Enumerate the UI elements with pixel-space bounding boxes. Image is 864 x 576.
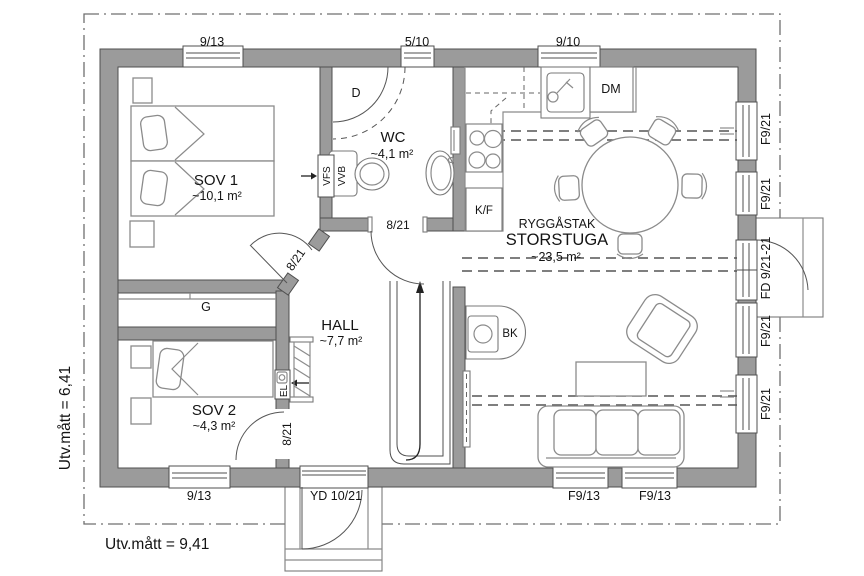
arrow-right-icon <box>311 173 317 180</box>
room-label-storstuga: STORSTUGA <box>506 231 608 249</box>
ceiling-note: RYGGÅSTAK <box>519 216 596 231</box>
window-label-bottom-3: F9/13 <box>639 489 671 503</box>
floorplan-canvas: SOV 1 ~10,1 m² SOV 2 ~4,3 m² WC ~4,1 m² … <box>0 0 864 576</box>
nightstand <box>133 78 152 103</box>
dining-table <box>582 137 678 233</box>
window-label-bottom-2: F9/13 <box>568 489 600 503</box>
entry-door-label: YD 10/21 <box>310 489 362 503</box>
window-label-right-2: F9/21 <box>759 178 773 210</box>
armchair <box>622 290 702 368</box>
nightstand <box>131 346 151 368</box>
room-area-wc: ~4,1 m² <box>371 147 414 161</box>
window-label-top-2: 5/10 <box>405 35 429 49</box>
sov2-door-label: 8/21 <box>280 422 294 446</box>
room-label-hall: HALL <box>321 317 359 334</box>
nightstand <box>130 221 154 247</box>
stairs <box>390 281 450 464</box>
electrical-panel-label: EL <box>279 384 290 397</box>
room-area-hall: ~7,7 m² <box>320 334 363 348</box>
water-heater-label: VVB <box>337 166 348 186</box>
room-label-wc: WC <box>381 129 406 146</box>
sov1-door-swing <box>250 233 312 250</box>
pillow <box>140 169 168 206</box>
window-label-top-3: 9/10 <box>556 35 580 49</box>
room-area-sov1: ~10,1 m² <box>192 189 242 203</box>
coffee-table <box>576 362 646 396</box>
sov1-furniture <box>130 78 274 247</box>
sov1-door-label: 8/21 <box>283 246 308 273</box>
fridge-freezer-label: K/F <box>475 205 493 217</box>
closet <box>118 293 276 299</box>
outer-width-dimension: Utv.mått = 9,41 <box>105 536 209 553</box>
window-label-right-1: F9/21 <box>759 113 773 145</box>
angled-wall-stub <box>309 229 330 251</box>
outer-height-dimension: Utv.mått = 6,41 <box>57 366 74 470</box>
shower-label: D <box>351 86 360 100</box>
wc-door-label: 8/21 <box>386 218 410 232</box>
wood-stove-label: BK <box>502 328 518 340</box>
window-label-right-4: F9/21 <box>759 388 773 420</box>
french-door-label: FD 9/21-21 <box>759 237 773 300</box>
stairs-up-arrow-icon <box>416 281 424 293</box>
room-label-sov2: SOV 2 <box>192 402 236 419</box>
room-area-sov2: ~4,3 m² <box>193 419 236 433</box>
window-label-right-3: F9/21 <box>759 315 773 347</box>
coat-rack <box>290 337 313 402</box>
nightstand <box>131 398 151 424</box>
window-label-bottom-1: 9/13 <box>187 489 211 503</box>
wc-door-swing <box>371 231 424 284</box>
vent-shaft-label: VFS <box>322 166 333 186</box>
windows-right <box>736 102 757 433</box>
pillow <box>140 114 168 151</box>
dishwasher-label: DM <box>601 82 620 96</box>
room-label-sov1: SOV 1 <box>194 172 238 189</box>
floor-plan: SOV 1 ~10,1 m² SOV 2 ~4,3 m² WC ~4,1 m² … <box>0 0 864 576</box>
closet-label: G <box>201 300 211 314</box>
window-label-top-1: 9/13 <box>200 35 224 49</box>
room-area-storstuga: ~23,5 m² <box>531 250 581 264</box>
pillow <box>155 348 184 391</box>
